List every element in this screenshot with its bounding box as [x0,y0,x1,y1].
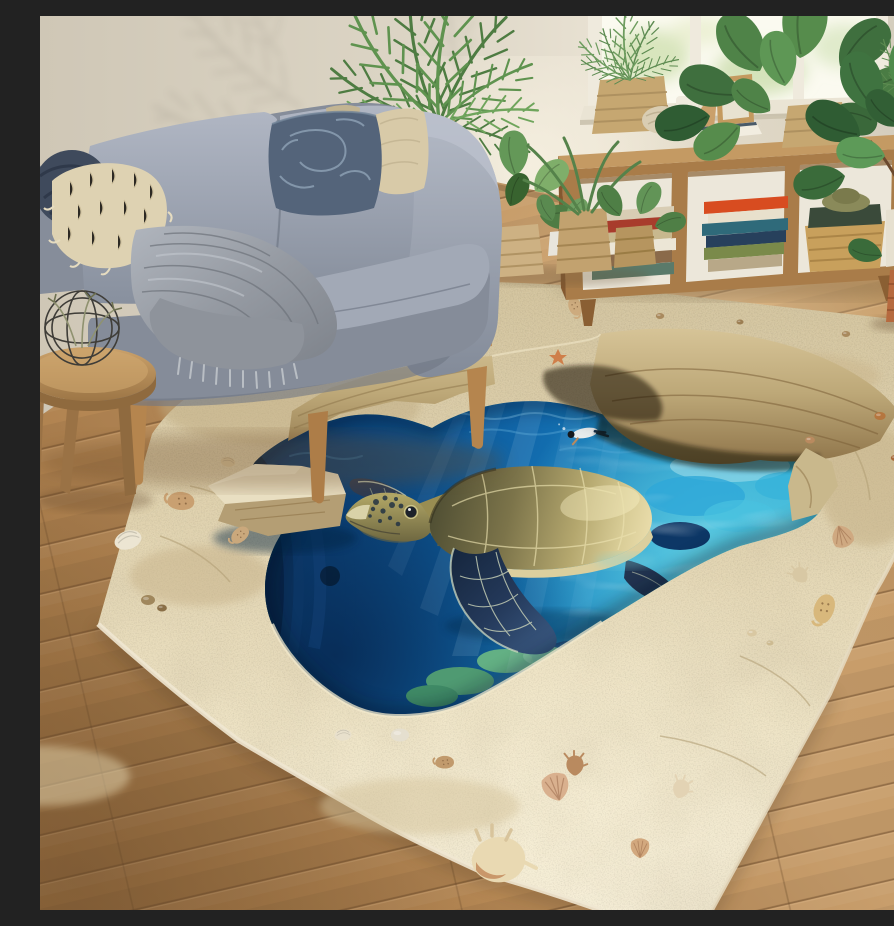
pebble [842,331,850,337]
scene-canvas [40,16,894,910]
embroidered-pillow [269,112,382,216]
pebble [767,641,774,646]
book-stack [702,196,788,272]
pebble [737,320,744,325]
pebble [391,729,409,742]
living-room-photo [40,16,894,910]
plant-basket [614,225,656,268]
pebble [141,595,155,605]
turtle-eye [406,507,417,518]
pebble [157,605,167,612]
plant-basket [556,208,612,274]
pebble [874,412,885,420]
pebble [805,437,815,444]
book [886,209,894,267]
pebble [656,313,664,319]
pebble [747,630,757,637]
